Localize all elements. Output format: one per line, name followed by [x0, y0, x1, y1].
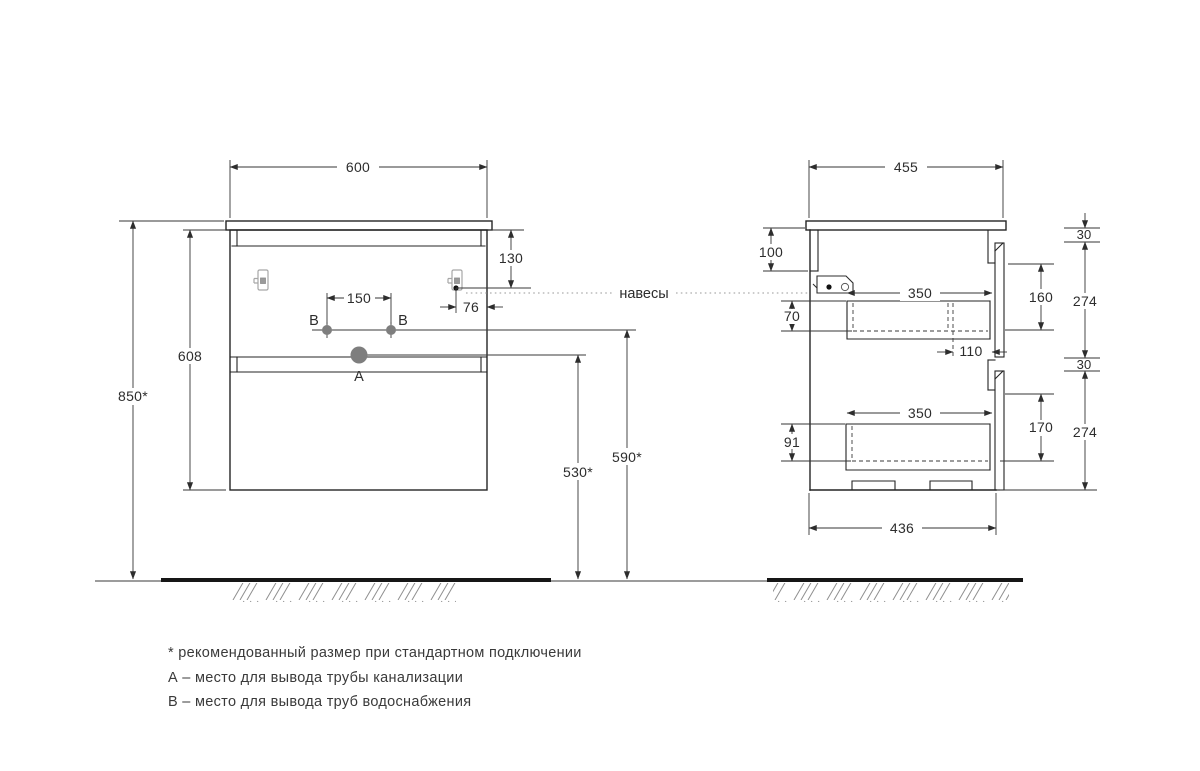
- hanger-bracket-icon: [813, 276, 853, 293]
- dim-top-front-height: 274: [1073, 293, 1097, 309]
- dim-drain-floor-height: 530*: [563, 464, 593, 480]
- dim-bracket-top-offset: 130: [499, 250, 523, 266]
- dim-base-depth: 436: [890, 520, 914, 536]
- front-countertop: [226, 221, 492, 230]
- drain-hole-a: [351, 347, 368, 364]
- dim-top-gap: 30: [1077, 227, 1092, 242]
- side-top-drawer-front: [995, 243, 1004, 357]
- dim-bottom-drawer-top-offset: 91: [784, 434, 800, 450]
- dim-cabinet-height: 608: [178, 348, 202, 364]
- installation-drawing: 600 130 76 150 608 850* В: [0, 0, 1200, 771]
- dim-hanger-drawer-gap: 70: [784, 308, 800, 324]
- front-view-dimensions: 600 130 76 150 608 850* В: [111, 159, 650, 579]
- hangers-label: навесы: [619, 286, 668, 302]
- footnote-recommended-size: * рекомендованный размер при стандартном…: [168, 645, 582, 661]
- dim-bottom-front-height: 274: [1073, 424, 1097, 440]
- side-countertop: [806, 221, 1006, 230]
- dim-back-rail-height: 100: [759, 244, 783, 260]
- side-view-dimensions: 455 100 70 350 110 160 91: [754, 159, 1104, 536]
- supply-hole-b-left: [322, 325, 332, 335]
- dim-depth: 455: [894, 159, 918, 175]
- dim-bottom-drawer-inner-height: 170: [1029, 419, 1053, 435]
- floor-hatch-left: [228, 583, 456, 602]
- dim-siphon-cutout: 110: [959, 343, 982, 359]
- dim-bracket-edge-offset: 76: [463, 299, 479, 315]
- front-view: [226, 221, 531, 490]
- dim-top-drawer-inner-height: 160: [1029, 289, 1053, 305]
- dim-top-drawer-depth: 350: [908, 285, 932, 301]
- floor: [95, 580, 1023, 602]
- side-bottom-drawer-front: [995, 371, 1004, 490]
- label-hole-b-right: В: [398, 313, 408, 329]
- dim-bottom-gap: 30: [1077, 357, 1092, 372]
- hanger-clip-icon-left: [254, 270, 268, 290]
- dim-supply-spacing: 150: [347, 290, 371, 306]
- footnote-hole-a: А – место для вывода трубы канализации: [168, 670, 463, 686]
- floor-hatch-right: [773, 583, 1009, 602]
- label-hole-a: А: [354, 369, 364, 385]
- footnote-hole-b: В – место для вывода труб водоснабжения: [168, 694, 471, 710]
- dim-install-height: 850*: [118, 388, 148, 404]
- supply-hole-b-right: [386, 325, 396, 335]
- label-hole-b-left: В: [309, 313, 319, 329]
- footnotes: * рекомендованный размер при стандартном…: [168, 645, 582, 710]
- dim-front-width: 600: [346, 159, 370, 175]
- dim-supply-floor-height: 590*: [612, 449, 642, 465]
- side-bottom-drawer-box: [846, 424, 990, 470]
- dim-bottom-drawer-depth: 350: [908, 405, 932, 421]
